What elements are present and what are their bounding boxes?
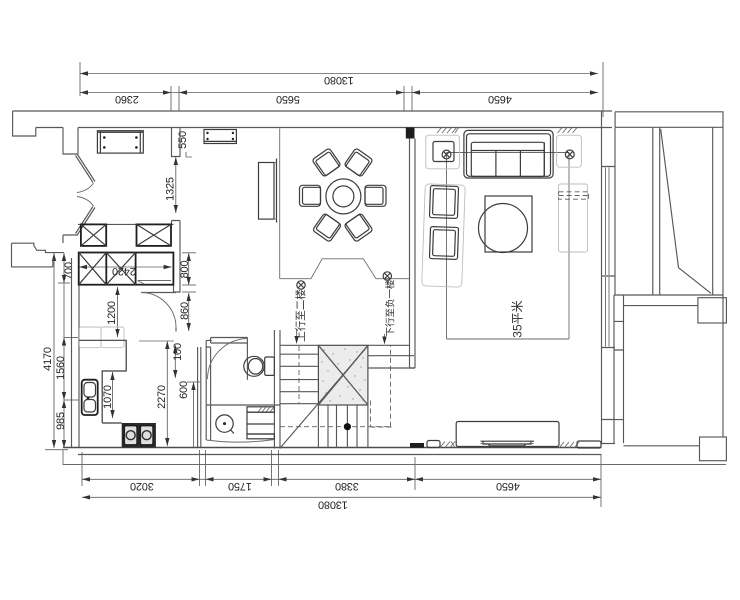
- svg-text:985: 985: [55, 412, 67, 430]
- svg-text:860: 860: [179, 302, 191, 320]
- svg-text:800: 800: [179, 261, 191, 279]
- svg-text:13080: 13080: [324, 74, 354, 86]
- svg-text:35平米: 35平米: [511, 300, 525, 337]
- svg-text:2360: 2360: [115, 93, 139, 105]
- svg-text:13080: 13080: [318, 499, 348, 511]
- svg-text:700: 700: [63, 262, 75, 280]
- svg-text:1750: 1750: [228, 480, 252, 492]
- svg-text:1070: 1070: [102, 385, 114, 409]
- svg-text:3020: 3020: [130, 480, 154, 492]
- svg-text:100: 100: [172, 343, 184, 361]
- svg-text:1200: 1200: [106, 301, 118, 325]
- svg-text:550: 550: [177, 131, 189, 149]
- svg-text:600: 600: [178, 381, 190, 399]
- svg-text:下行至负一楼: 下行至负一楼: [385, 279, 397, 337]
- svg-text:上行至二楼: 上行至二楼: [294, 289, 307, 342]
- svg-text:2270: 2270: [156, 385, 168, 409]
- svg-text:4650: 4650: [496, 480, 520, 492]
- svg-text:1560: 1560: [55, 356, 67, 380]
- svg-text:4170: 4170: [42, 347, 54, 371]
- svg-text:3380: 3380: [335, 480, 359, 492]
- svg-text:4650: 4650: [488, 93, 512, 105]
- svg-text:5650: 5650: [276, 93, 300, 105]
- svg-text:1325: 1325: [164, 177, 176, 201]
